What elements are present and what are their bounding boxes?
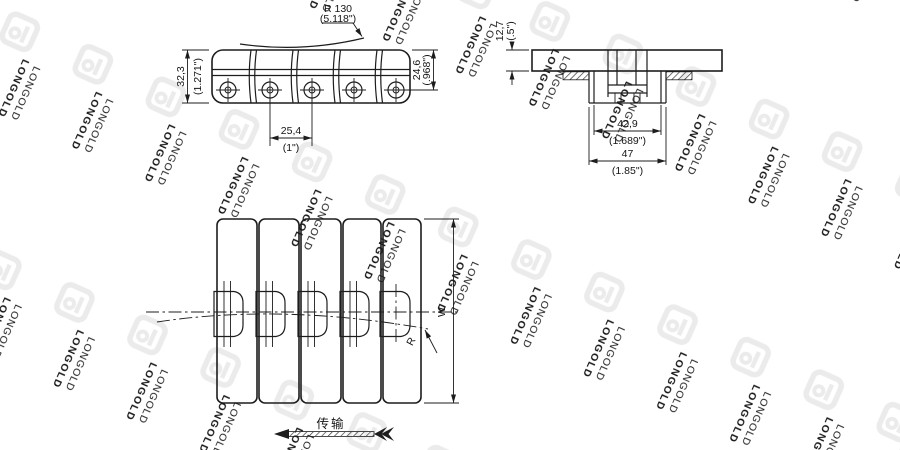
dim-height-in: (1.271") <box>192 58 204 95</box>
dim-thickness-in: (.5") <box>505 21 517 40</box>
guide-rail-left <box>563 72 589 80</box>
dim-pitch-in: (1") <box>283 142 300 154</box>
dim-inner-width-in: (1.689") <box>609 135 646 147</box>
watermark-background <box>0 0 900 450</box>
drawing-canvas: LONGOLD LONGOLD R 130 (5.118") <box>0 0 900 450</box>
guide-rail-right <box>666 72 692 80</box>
drawing-sheet: LONGOLD LONGOLD R 130 (5.118") <box>0 0 900 450</box>
dim-height-mm: 32,3 <box>175 66 187 87</box>
direction-label: 传输 <box>316 416 345 431</box>
dim-inner-width-mm: 42,9 <box>617 118 638 130</box>
dim-radius-in: (5.118") <box>320 13 356 25</box>
dim-pitch-mm: 25,4 <box>281 125 302 137</box>
width-label: W <box>436 307 448 317</box>
dim-outer-width-mm: 47 <box>622 148 634 160</box>
dim-pin-height-in: (.968") <box>421 54 433 85</box>
dim-outer-width-in: (1.85") <box>612 165 643 177</box>
